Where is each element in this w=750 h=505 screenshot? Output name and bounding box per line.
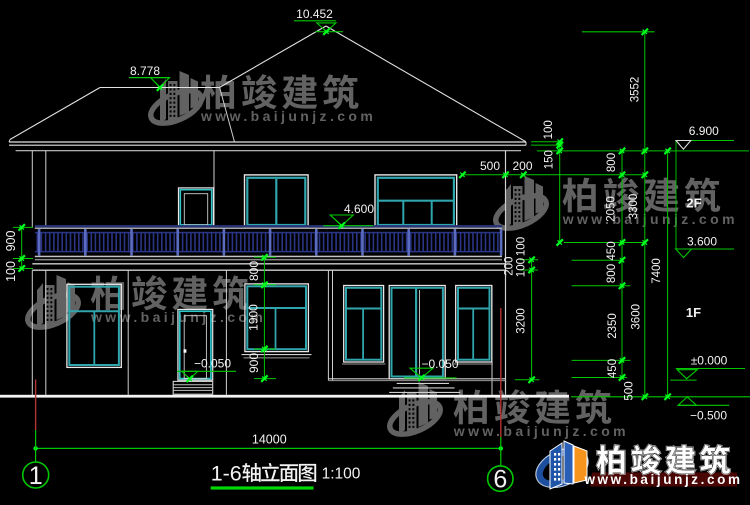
svg-text:7400: 7400 bbox=[651, 258, 663, 284]
svg-text:200: 200 bbox=[512, 159, 532, 173]
svg-text:900: 900 bbox=[247, 353, 261, 373]
svg-text:1-6: 1-6 bbox=[211, 461, 242, 485]
svg-text:www.baijunjz.com: www.baijunjz.com bbox=[583, 472, 742, 487]
svg-text:2350: 2350 bbox=[607, 313, 619, 339]
svg-text:www.baijunjz.com: www.baijunjz.com bbox=[453, 423, 629, 439]
svg-text:1900: 1900 bbox=[247, 304, 261, 331]
svg-text:3600: 3600 bbox=[630, 304, 642, 330]
svg-text:4.600: 4.600 bbox=[344, 202, 374, 216]
svg-text:200: 200 bbox=[504, 257, 516, 276]
svg-text:1: 1 bbox=[29, 462, 43, 490]
svg-text:6: 6 bbox=[493, 466, 507, 494]
svg-text:1F: 1F bbox=[686, 305, 701, 320]
svg-text:100: 100 bbox=[543, 120, 555, 139]
svg-text:100: 100 bbox=[4, 261, 18, 282]
svg-text:3.600: 3.600 bbox=[687, 234, 717, 248]
svg-text:800: 800 bbox=[606, 264, 618, 283]
svg-text:www.baijunjz.com: www.baijunjz.com bbox=[562, 211, 738, 227]
svg-text:www.baijunjz.com: www.baijunjz.com bbox=[200, 108, 376, 124]
svg-text:1:100: 1:100 bbox=[322, 466, 361, 483]
svg-text:100: 100 bbox=[516, 237, 528, 256]
svg-text:450: 450 bbox=[607, 359, 619, 378]
svg-text:14000: 14000 bbox=[252, 433, 287, 447]
svg-text:500: 500 bbox=[624, 381, 636, 400]
svg-text:500: 500 bbox=[480, 159, 500, 173]
svg-text:2F: 2F bbox=[686, 196, 701, 211]
svg-text:±0.000: ±0.000 bbox=[691, 353, 728, 367]
svg-text:−0.500: −0.500 bbox=[690, 408, 727, 422]
svg-text:150: 150 bbox=[543, 150, 555, 169]
svg-text:2050: 2050 bbox=[606, 196, 618, 222]
svg-text:8.778: 8.778 bbox=[130, 64, 160, 78]
svg-text:100: 100 bbox=[516, 258, 528, 277]
svg-text:−0.050: −0.050 bbox=[194, 356, 231, 370]
svg-text:3200: 3200 bbox=[516, 308, 528, 334]
svg-text:3300: 3300 bbox=[628, 194, 640, 220]
svg-text:900: 900 bbox=[4, 231, 18, 252]
svg-text:800: 800 bbox=[247, 261, 261, 281]
svg-text:−0.050: −0.050 bbox=[421, 357, 458, 371]
svg-text:3552: 3552 bbox=[630, 77, 642, 103]
svg-text:6.900: 6.900 bbox=[689, 124, 719, 138]
svg-text:450: 450 bbox=[606, 241, 618, 260]
svg-text:800: 800 bbox=[606, 153, 618, 172]
svg-text:10.452: 10.452 bbox=[296, 7, 333, 21]
